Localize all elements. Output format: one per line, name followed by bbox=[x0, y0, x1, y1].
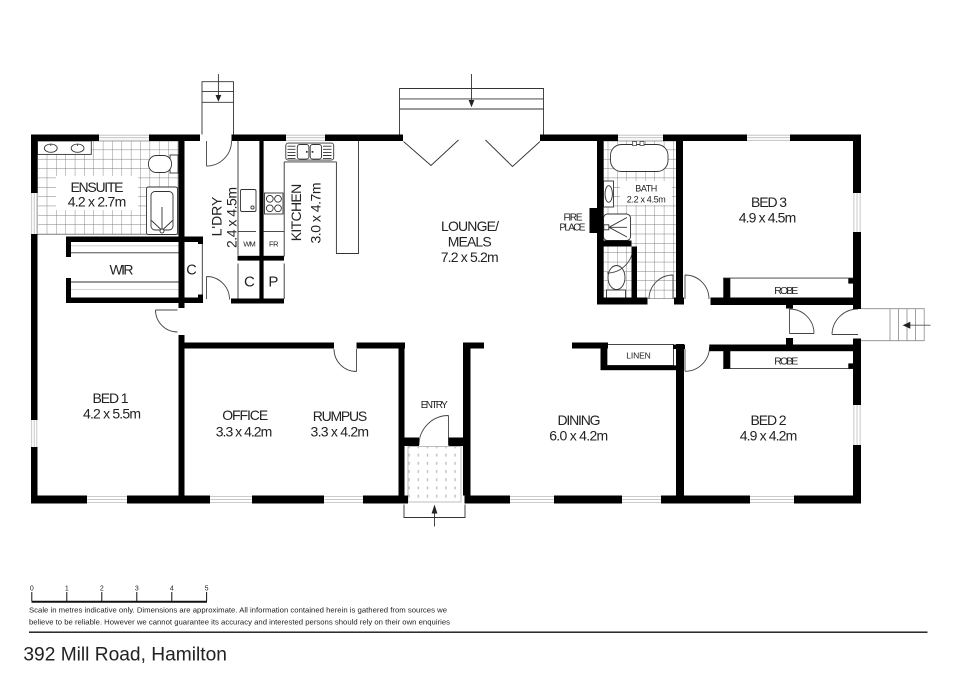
svg-text:MEALS: MEALS bbox=[448, 234, 492, 250]
svg-text:LINEN: LINEN bbox=[626, 351, 651, 361]
svg-text:4.9 x 4.2m: 4.9 x 4.2m bbox=[740, 428, 798, 444]
svg-text:ENTRY: ENTRY bbox=[421, 400, 448, 411]
svg-text:3: 3 bbox=[135, 586, 139, 593]
svg-text:392 Mill Road, Hamilton: 392 Mill Road, Hamilton bbox=[23, 645, 227, 666]
svg-text:4: 4 bbox=[170, 586, 174, 593]
svg-text:P: P bbox=[268, 274, 278, 291]
svg-text:1: 1 bbox=[65, 586, 69, 593]
svg-text:OFFICE: OFFICE bbox=[222, 407, 268, 423]
svg-text:BED 2: BED 2 bbox=[751, 412, 787, 428]
svg-text:4.2 x 5.5m: 4.2 x 5.5m bbox=[83, 406, 141, 422]
svg-text:4.9 x 4.5m: 4.9 x 4.5m bbox=[739, 210, 797, 226]
svg-text:6.0 x 4.2m: 6.0 x 4.2m bbox=[549, 428, 608, 444]
svg-text:KITCHEN: KITCHEN bbox=[288, 184, 304, 242]
svg-text:WM: WM bbox=[243, 239, 256, 248]
svg-text:BED 3: BED 3 bbox=[751, 194, 787, 210]
svg-text:believe to be reliable. Howeve: believe to be reliable. However we canno… bbox=[29, 618, 450, 627]
svg-text:5: 5 bbox=[205, 586, 209, 593]
svg-text:7.2 x 5.2m: 7.2 x 5.2m bbox=[441, 249, 499, 265]
svg-text:C: C bbox=[186, 263, 196, 279]
svg-text:BED 1: BED 1 bbox=[93, 390, 129, 406]
svg-text:0: 0 bbox=[30, 586, 34, 593]
svg-text:2.2 x 4.5m: 2.2 x 4.5m bbox=[627, 194, 666, 204]
svg-text:ROBE: ROBE bbox=[774, 285, 798, 297]
svg-text:FR: FR bbox=[269, 239, 279, 248]
svg-text:4.2 x 2.7m: 4.2 x 2.7m bbox=[68, 194, 127, 210]
svg-text:BATH: BATH bbox=[635, 184, 657, 194]
svg-text:DINING: DINING bbox=[558, 412, 601, 428]
svg-text:Scale in metres indicative onl: Scale in metres indicative only. Dimensi… bbox=[29, 606, 447, 615]
svg-text:ROBE: ROBE bbox=[774, 356, 798, 368]
svg-text:WIR: WIR bbox=[110, 262, 134, 278]
svg-text:2: 2 bbox=[100, 586, 104, 593]
svg-text:C: C bbox=[244, 274, 255, 291]
svg-text:RUMPUS: RUMPUS bbox=[313, 408, 368, 424]
svg-text:3.3 x 4.2m: 3.3 x 4.2m bbox=[311, 423, 370, 439]
svg-text:2.4 x 4.5m: 2.4 x 4.5m bbox=[223, 187, 239, 248]
svg-text:L'DRY: L'DRY bbox=[209, 196, 225, 236]
svg-text:3.3 x 4.2m: 3.3 x 4.2m bbox=[216, 423, 273, 439]
svg-text:3.0 x 4.7m: 3.0 x 4.7m bbox=[307, 183, 323, 244]
svg-text:LOUNGE/: LOUNGE/ bbox=[441, 218, 499, 234]
svg-text:PLACE: PLACE bbox=[559, 223, 585, 234]
